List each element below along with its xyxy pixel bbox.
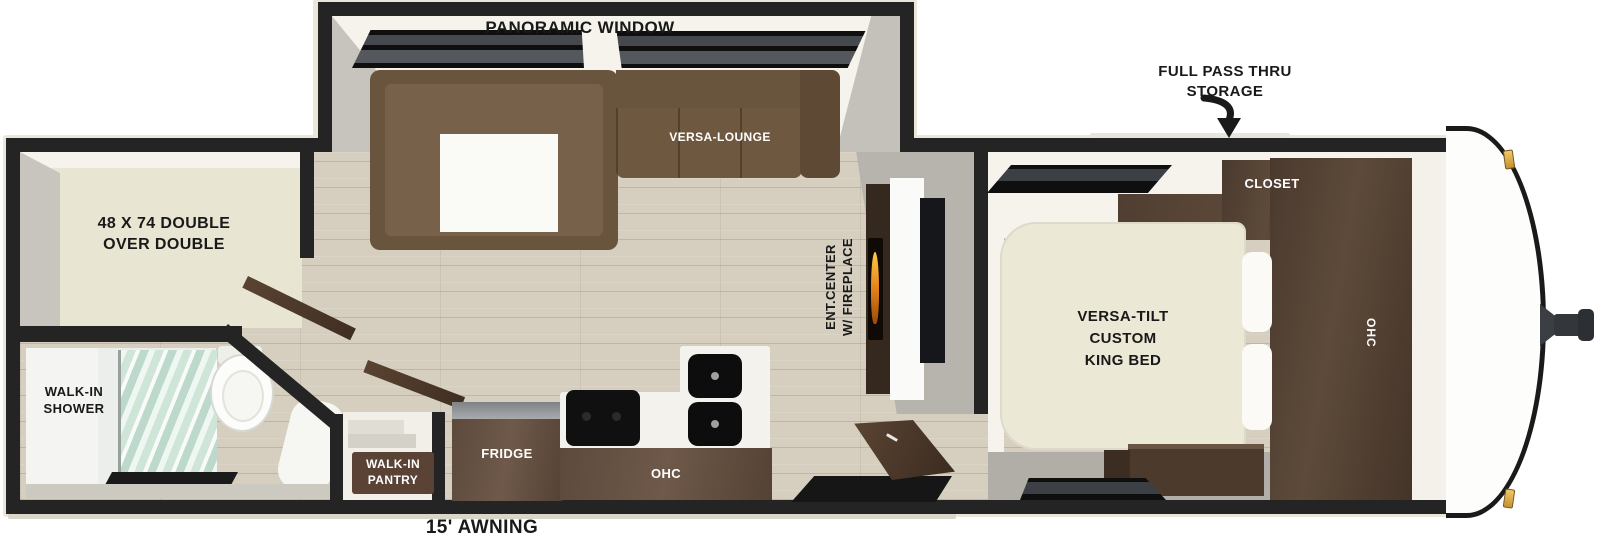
pantry-step-1 [348,420,404,434]
fridge-label: FRIDGE [452,446,562,463]
pantry-left-wall [330,414,343,500]
ent-center-label-line2: W/ FIREPLACE [840,202,857,372]
marker-light-top [1503,149,1516,169]
bathroom-floor-edge [26,484,334,498]
tv-screen [920,198,945,363]
bunk-bed-label-line2: OVER DOUBLE [48,235,280,256]
lounge-table [440,134,558,232]
walk-in-shower-label: WALK-IN SHOWER [28,384,120,418]
fridge-counter-top [452,402,562,419]
bunk-room-right-wall [300,152,314,258]
floorplan-canvas: 48 X 74 DOUBLE OVER DOUBLE WALK-IN SHOWE… [0,0,1600,540]
fireplace-flame [871,252,879,324]
bunk-bed-label-line1: 48 X 74 DOUBLE [48,214,280,235]
lounge-sofa-back [616,70,802,110]
bedroom-ohc-label-text: OHC [1364,318,1378,348]
pass-thru-hatch-line [1090,133,1290,138]
walk-in-shower-label-line2: SHOWER [28,401,120,418]
bunk-bed-label: 48 X 74 DOUBLE OVER DOUBLE [48,214,280,256]
bed-nook-2 [1242,344,1272,430]
versa-lounge-label: VERSA-LOUNGE [640,130,800,146]
versa-lounge-label-text: VERSA-LOUNGE [640,130,800,146]
king-bed-label: VERSA-TILT CUSTOM KING BED [1020,306,1226,371]
bedroom-partition-wall [974,152,988,414]
king-bed-label-line2: CUSTOM [1020,328,1226,350]
shower-glass-door [118,350,217,490]
bathroom-top-wall [20,326,242,342]
ent-center-label-line1: ENT.CENTER [823,202,840,372]
hitch-coupler [1578,309,1594,341]
marker-light-bottom [1503,488,1516,508]
lounge-sofa-arm [800,70,840,178]
closet-label-text: CLOSET [1202,176,1342,193]
pantry-step-2 [348,434,416,448]
range-cooktop [566,390,640,446]
awning-label-text: 15' AWNING [382,516,582,540]
range-burner-2 [612,412,621,421]
fridge-label-text: FRIDGE [452,446,562,463]
bedroom-window-front [987,165,1172,193]
bedroom-right-wall-face [1412,152,1448,500]
shower-wall-face [26,348,98,492]
kitchen-ohc-label-text: OHC [560,466,772,483]
kitchen-ohc-label: OHC [560,466,772,483]
walk-in-pantry-label: WALK-IN PANTRY [352,457,434,488]
walk-in-pantry-label-line2: PANTRY [352,473,434,489]
awning-label: 15' AWNING [382,516,582,540]
sink-faucet-1 [711,372,719,380]
range-burner-1 [582,412,591,421]
bedroom-ohc-label: OHC [1348,300,1378,366]
down-arrow-icon [1196,94,1248,140]
panoramic-window-label: PANORAMIC WINDOW [430,17,730,39]
front-cap [1446,126,1546,518]
king-bed-label-line3: KING BED [1020,350,1226,372]
king-bed-label-line1: VERSA-TILT [1020,306,1226,328]
bunk-room-top-wall-face [20,152,302,168]
toilet-seat [222,370,264,422]
ent-center-label: ENT.CENTER W/ FIREPLACE [823,202,863,372]
sink-faucet-2 [711,420,719,428]
ent-center-panel [890,178,924,400]
walk-in-shower-label-line1: WALK-IN [28,384,120,401]
full-pass-thru-label-line1: FULL PASS THRU [1125,62,1325,82]
entry-step [788,476,952,502]
bedroom-window-rear [1020,478,1166,500]
bed-nook-1 [1242,252,1272,332]
closet-label: CLOSET [1202,176,1342,193]
walk-in-pantry-label-line1: WALK-IN [352,457,434,473]
panoramic-window-label-text: PANORAMIC WINDOW [430,17,730,39]
